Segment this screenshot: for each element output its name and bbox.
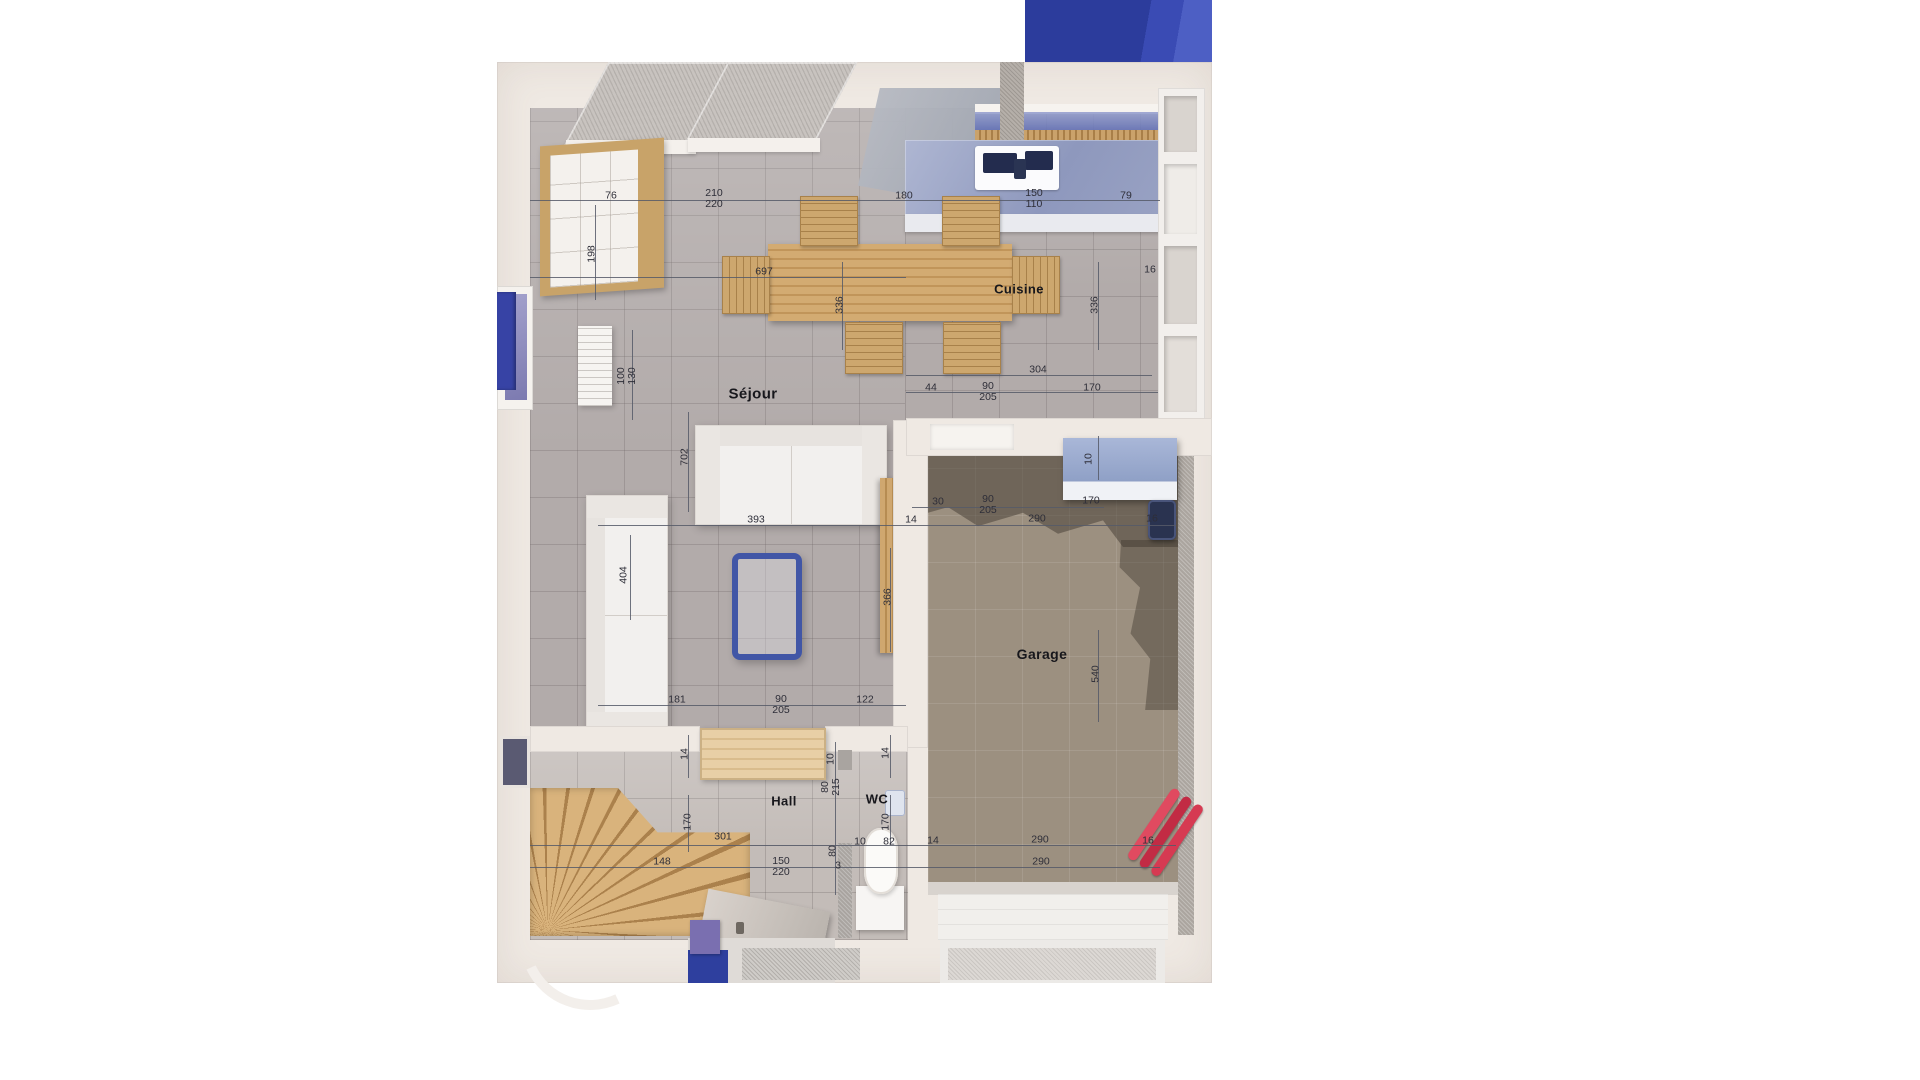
dimension-label: 404 <box>618 566 629 584</box>
dimension-label: 540 <box>1090 665 1101 683</box>
dimension-label: 336 <box>834 296 845 314</box>
dimension-labels: 76210 220180150 1107919869733616336100 1… <box>0 0 1920 1080</box>
dimension-label: 14 <box>927 835 939 846</box>
dimension-label: 14 <box>679 748 690 760</box>
dimension-label: 122 <box>856 694 874 705</box>
dimension-label: 90 205 <box>979 381 997 403</box>
dimension-label: 79 <box>1120 190 1132 201</box>
dimension-label: 80 <box>827 845 838 857</box>
dimension-label: 10 <box>1083 453 1094 465</box>
dimension-label: 44 <box>925 382 937 393</box>
dimension-label: 170 <box>682 813 693 831</box>
dimension-label: 14 <box>905 514 917 525</box>
dimension-label: 702 <box>679 448 690 466</box>
dimension-label: 14 <box>880 747 891 759</box>
dimension-label: 3 <box>835 860 841 871</box>
floor-plan-render: SéjourCuisineGarageHallWC 76210 22018015… <box>0 0 1920 1080</box>
dimension-label: 301 <box>714 831 732 842</box>
dimension-label: 76 <box>605 190 617 201</box>
dimension-label: 150 220 <box>772 856 790 878</box>
dimension-label: 198 <box>586 245 597 263</box>
dimension-label: 290 <box>1028 513 1046 524</box>
dimension-label: 170 <box>1082 495 1100 506</box>
dimension-label: 82 <box>883 836 895 847</box>
dimension-label: 180 <box>895 190 913 201</box>
dimension-label: 16 <box>1146 513 1158 524</box>
dimension-label: 10 <box>825 753 836 765</box>
dimension-label: 393 <box>747 514 765 525</box>
dimension-label: 290 <box>1031 834 1049 845</box>
dimension-label: 16 <box>1144 264 1156 275</box>
dimension-label: 150 110 <box>1025 188 1043 210</box>
dimension-label: 10 <box>854 836 866 847</box>
dimension-label: 90 205 <box>772 694 790 716</box>
dimension-label: 210 220 <box>705 188 723 210</box>
dimension-label: 290 <box>1032 856 1050 867</box>
dimension-label: 16 <box>1142 835 1154 846</box>
dimension-label: 697 <box>755 266 773 277</box>
dimension-label: 181 <box>668 694 686 705</box>
dimension-label: 30 <box>932 496 944 507</box>
dimension-label: 170 <box>880 813 891 831</box>
dimension-label: 90 205 <box>979 494 997 516</box>
dimension-label: 80 215 <box>820 778 842 796</box>
dimension-label: 170 <box>1083 382 1101 393</box>
dimension-label: 304 <box>1029 364 1047 375</box>
dimension-label: 148 <box>653 856 671 867</box>
dimension-label: 366 <box>882 588 893 606</box>
dimension-label: 336 <box>1089 296 1100 314</box>
dimension-label: 100 130 <box>616 367 638 385</box>
